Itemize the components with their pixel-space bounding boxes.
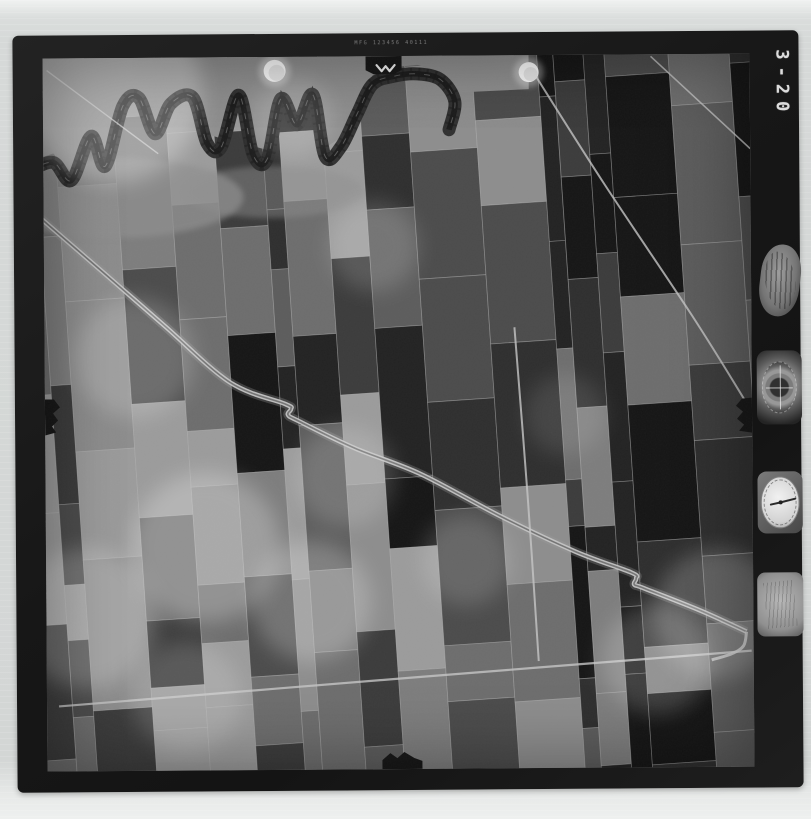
clock-face (760, 476, 799, 528)
level-plate (757, 572, 803, 636)
aerial-photo (43, 54, 755, 772)
data-plate-engraving (761, 250, 798, 311)
aerial-photo-image (43, 54, 755, 772)
film-edge-label: MFG 123456 40111 (354, 40, 428, 47)
clock-center-pin (778, 500, 782, 504)
frame-number-label: 3-20 (771, 49, 791, 118)
altimeter-dial (757, 350, 803, 424)
film-frame: MFG 123456 40111 3-20 (12, 30, 803, 792)
data-plate (756, 242, 804, 318)
clock-dial (757, 471, 802, 533)
level-plate-marking (763, 580, 798, 629)
